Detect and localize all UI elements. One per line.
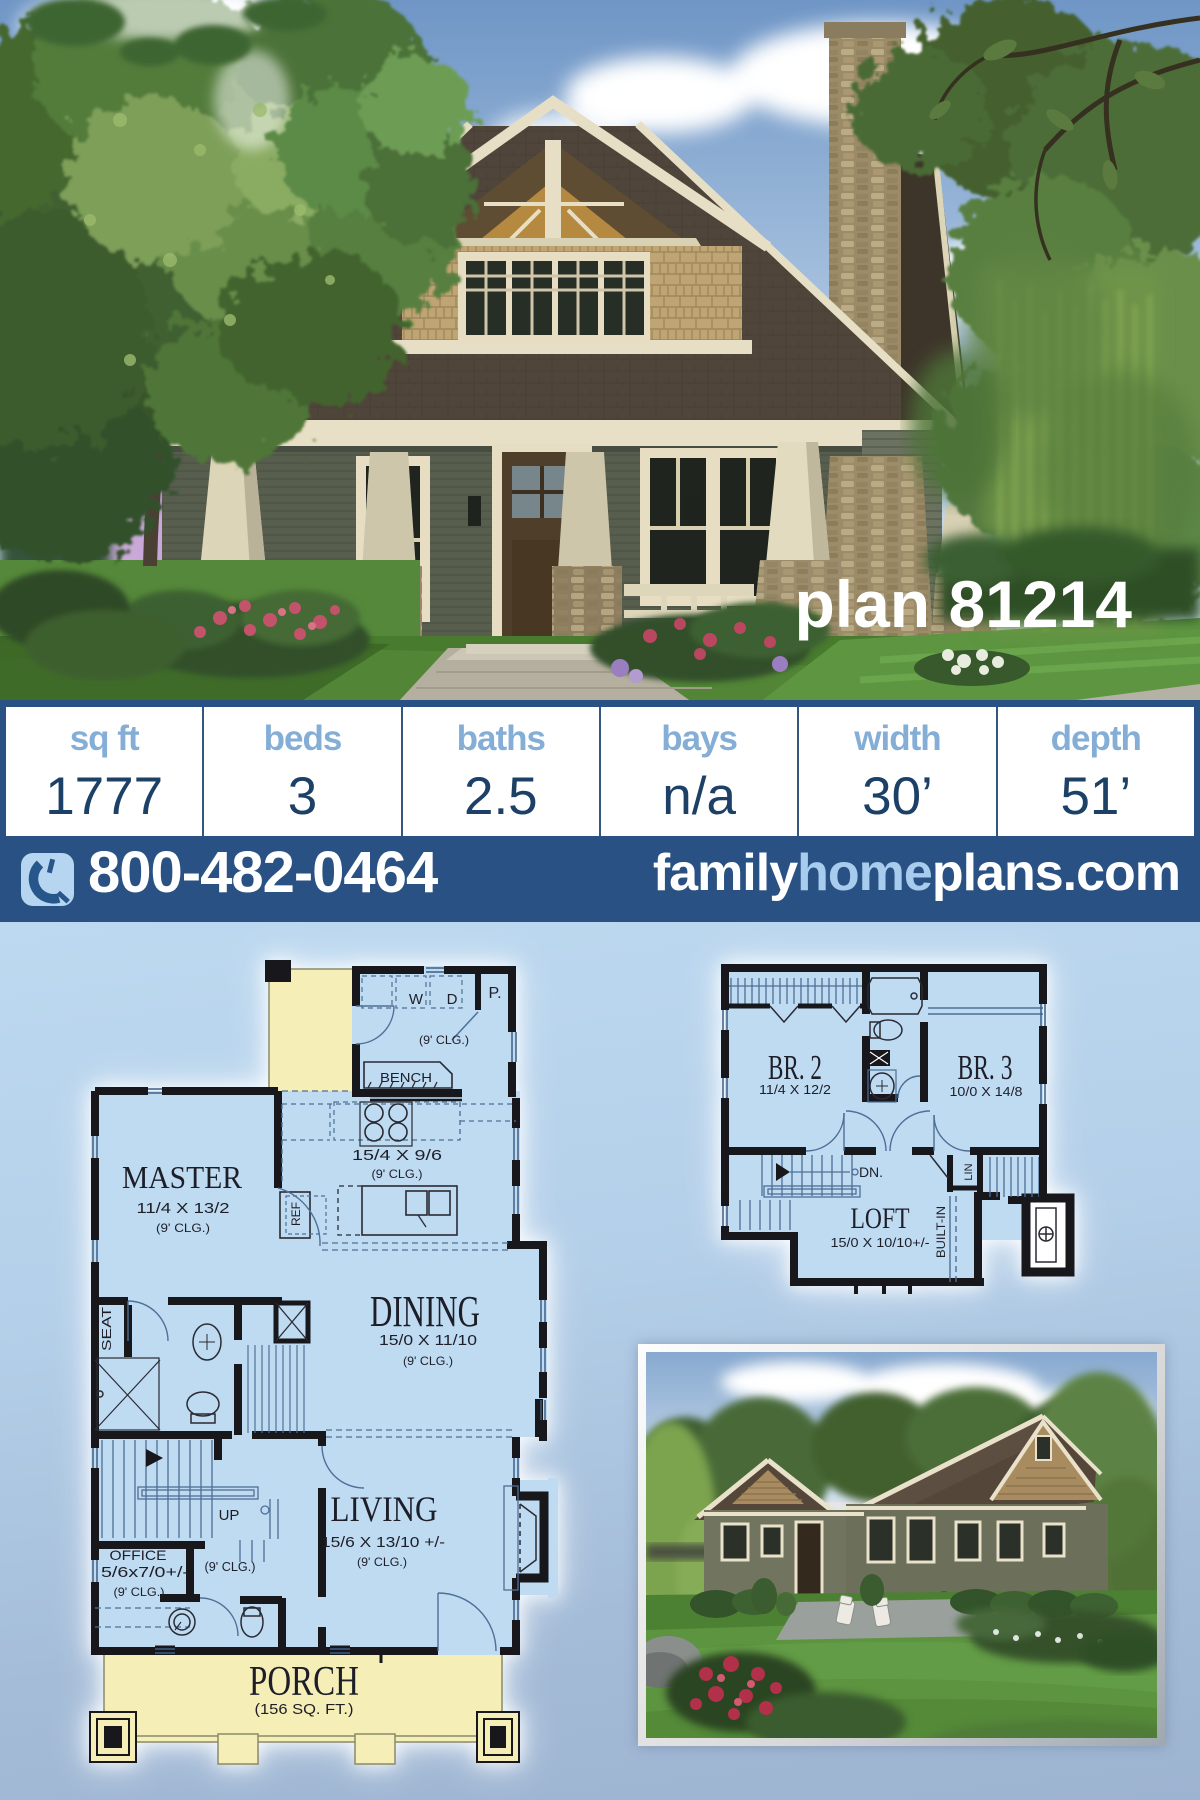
svg-text:DINING: DINING (370, 1287, 480, 1336)
svg-text:(9' CLG.): (9' CLG.) (205, 1559, 256, 1574)
svg-text:(9' CLG.): (9' CLG.) (403, 1354, 453, 1368)
svg-text:LIVING: LIVING (331, 1489, 438, 1529)
svg-text:OFFICE: OFFICE (110, 1547, 167, 1563)
svg-text:W: W (409, 991, 424, 1008)
svg-text:15/4 X 9/6: 15/4 X 9/6 (352, 1147, 442, 1164)
svg-text:PORCH: PORCH (249, 1659, 359, 1705)
svg-text:BR. 3: BR. 3 (958, 1048, 1013, 1087)
svg-text:10/0 X 14/8: 10/0 X 14/8 (950, 1084, 1023, 1099)
svg-text:REF: REF (289, 1202, 303, 1226)
svg-text:DN.: DN. (859, 1164, 883, 1180)
svg-text:(9' CLG.): (9' CLG.) (114, 1585, 165, 1599)
svg-text:11/4 X 13/2: 11/4 X 13/2 (137, 1200, 230, 1217)
svg-text:15/0 X 10/10+/-: 15/0 X 10/10+/- (831, 1235, 930, 1250)
svg-text:(9' CLG.): (9' CLG.) (357, 1555, 407, 1569)
svg-text:D: D (447, 991, 458, 1008)
svg-text:11/4 X 12/2: 11/4 X 12/2 (759, 1082, 831, 1097)
svg-text:MASTER: MASTER (122, 1159, 243, 1195)
svg-text:5/6x7/0+/-: 5/6x7/0+/- (101, 1564, 189, 1581)
svg-text:(9' CLG.): (9' CLG.) (156, 1221, 210, 1235)
svg-text:LIN: LIN (963, 1163, 975, 1180)
svg-text:BENCH: BENCH (380, 1070, 432, 1085)
svg-text:P.: P. (488, 985, 501, 1002)
svg-text:UP: UP (219, 1507, 240, 1524)
svg-text:(9' CLG.): (9' CLG.) (419, 1033, 469, 1047)
svg-text:(156 SQ. FT.): (156 SQ. FT.) (255, 1701, 354, 1718)
svg-text:15/6 X 13/10 +/-: 15/6 X 13/10 +/- (321, 1534, 445, 1551)
svg-text:15/0 X 11/10: 15/0 X 11/10 (379, 1332, 477, 1349)
svg-text:LOFT: LOFT (851, 1202, 910, 1235)
svg-text:BUILT-IN: BUILT-IN (934, 1206, 948, 1258)
svg-text:(9' CLG.): (9' CLG.) (372, 1167, 423, 1181)
svg-text:SEAT: SEAT (99, 1307, 114, 1351)
